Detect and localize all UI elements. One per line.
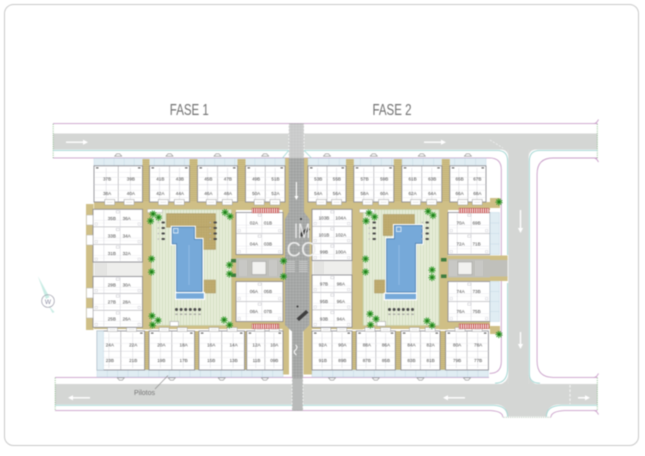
svg-text:13B: 13B [229, 358, 237, 363]
svg-text:63B: 63B [428, 176, 436, 181]
svg-text:02A: 02A [250, 221, 259, 226]
svg-text:··: ·· [264, 344, 266, 348]
svg-text:··: ·· [171, 344, 173, 348]
svg-text:91B: 91B [319, 358, 327, 363]
svg-text:34A: 34A [123, 233, 132, 238]
svg-text:··: ·· [326, 192, 328, 196]
svg-text:64A: 64A [428, 191, 437, 196]
svg-text:19B: 19B [157, 358, 165, 363]
svg-text:38A: 38A [103, 191, 112, 196]
svg-text:99B: 99B [320, 250, 328, 255]
svg-text:98A: 98A [337, 281, 346, 286]
svg-text:··: ·· [373, 177, 375, 181]
svg-text:79B: 79B [453, 358, 461, 363]
svg-text:89B: 89B [338, 358, 346, 363]
svg-text:05B: 05B [264, 289, 272, 294]
svg-text:60A: 60A [380, 191, 389, 196]
svg-text:12A: 12A [252, 343, 261, 348]
svg-text:85B: 85B [382, 358, 390, 363]
svg-text:76A: 76A [457, 309, 466, 314]
svg-text:95B: 95B [320, 299, 328, 304]
svg-text:74A: 74A [457, 289, 466, 294]
svg-text:52A: 52A [271, 191, 280, 196]
svg-text:··: ·· [169, 192, 171, 196]
svg-text:84A: 84A [407, 343, 416, 348]
svg-text:··: ·· [420, 344, 422, 348]
svg-text:15B: 15B [207, 358, 215, 363]
svg-text:92A: 92A [319, 343, 328, 348]
svg-text:FASE 1: FASE 1 [170, 102, 209, 119]
svg-text:72A: 72A [457, 242, 466, 247]
svg-text:··: ·· [118, 177, 120, 181]
svg-text:39B: 39B [127, 176, 135, 181]
svg-text:101B: 101B [319, 233, 330, 238]
svg-text:25B: 25B [108, 317, 116, 322]
svg-text:··: ·· [171, 359, 173, 363]
svg-text:71B: 71B [472, 242, 480, 247]
svg-text:47B: 47B [224, 176, 232, 181]
svg-text:29B: 29B [108, 283, 116, 288]
svg-text:··: ·· [331, 344, 333, 348]
svg-text:··: ·· [120, 344, 122, 348]
svg-text:104A: 104A [335, 216, 347, 221]
svg-text:94A: 94A [337, 316, 346, 321]
svg-text:46A: 46A [204, 191, 213, 196]
svg-text:··: ·· [265, 177, 267, 181]
svg-text:Pilotos: Pilotos [134, 390, 156, 397]
svg-text:54A: 54A [314, 191, 323, 196]
svg-text:40A: 40A [127, 191, 136, 196]
svg-text:18A: 18A [180, 343, 189, 348]
svg-text:09B: 09B [270, 358, 278, 363]
svg-text:11B: 11B [253, 358, 261, 363]
svg-text:65B: 65B [455, 176, 463, 181]
svg-text:49B: 49B [252, 176, 260, 181]
svg-text:··: ·· [375, 344, 377, 348]
svg-text:07B: 07B [264, 309, 272, 314]
svg-text:··: ·· [118, 192, 120, 196]
svg-text:CO: CO [287, 238, 317, 261]
svg-text:04A: 04A [250, 242, 259, 247]
svg-text:··: ·· [221, 344, 223, 348]
svg-text:102A: 102A [335, 233, 347, 238]
svg-text:14A: 14A [229, 343, 238, 348]
svg-text:01B: 01B [264, 221, 272, 226]
svg-text:W: W [45, 299, 52, 306]
svg-text:31B: 31B [108, 251, 116, 256]
svg-text:··: ·· [326, 177, 328, 181]
svg-text:··: ·· [120, 359, 122, 363]
svg-text:··: ·· [420, 359, 422, 363]
svg-text:··: ·· [264, 359, 266, 363]
svg-text:83B: 83B [407, 358, 415, 363]
svg-text:28A: 28A [123, 300, 132, 305]
svg-text:26A: 26A [123, 317, 132, 322]
svg-text:17B: 17B [180, 358, 188, 363]
svg-text:33B: 33B [108, 233, 116, 238]
svg-text:03B: 03B [264, 242, 272, 247]
svg-text:··: ·· [265, 192, 267, 196]
svg-text:··: ·· [467, 192, 469, 196]
svg-text:51B: 51B [271, 176, 279, 181]
svg-text:88A: 88A [363, 343, 372, 348]
svg-text:50A: 50A [252, 191, 261, 196]
svg-text:41B: 41B [156, 176, 164, 181]
svg-text:45B: 45B [204, 176, 212, 181]
svg-text:··: ·· [466, 359, 468, 363]
svg-text:32A: 32A [123, 251, 132, 256]
svg-text:86A: 86A [382, 343, 391, 348]
svg-text:08A: 08A [250, 309, 259, 314]
svg-text:78A: 78A [474, 343, 483, 348]
svg-text:59B: 59B [380, 176, 388, 181]
svg-text:20A: 20A [157, 343, 166, 348]
svg-text:··: ·· [169, 177, 171, 181]
svg-text:16A: 16A [207, 343, 216, 348]
svg-text:43B: 43B [176, 176, 184, 181]
svg-text:53B: 53B [314, 176, 322, 181]
svg-text:44A: 44A [176, 191, 185, 196]
svg-text:66A: 66A [455, 191, 464, 196]
svg-text:··: ·· [331, 359, 333, 363]
svg-text:68A: 68A [473, 191, 482, 196]
svg-text:··: ·· [217, 192, 219, 196]
svg-text:··: ·· [373, 192, 375, 196]
svg-text:22A: 22A [129, 343, 138, 348]
svg-text:58A: 58A [361, 191, 370, 196]
svg-text:FASE 2: FASE 2 [373, 102, 412, 119]
svg-text:69B: 69B [472, 221, 480, 226]
svg-text:61B: 61B [409, 176, 417, 181]
svg-text:70A: 70A [457, 221, 466, 226]
svg-text:96A: 96A [337, 299, 346, 304]
svg-text:82A: 82A [427, 343, 436, 348]
svg-text:35B: 35B [108, 216, 116, 221]
svg-text:··: ·· [421, 192, 423, 196]
svg-text:27B: 27B [108, 300, 116, 305]
svg-text:24A: 24A [106, 343, 115, 348]
svg-text:75B: 75B [472, 309, 480, 314]
svg-text:48A: 48A [224, 191, 233, 196]
svg-text:100A: 100A [335, 250, 347, 255]
svg-text:80A: 80A [453, 343, 462, 348]
svg-text:42A: 42A [156, 191, 165, 196]
svg-text:62A: 62A [409, 191, 418, 196]
svg-text:36A: 36A [123, 216, 132, 221]
svg-text:10A: 10A [270, 343, 279, 348]
svg-text:97B: 97B [320, 281, 328, 286]
svg-text:06A: 06A [250, 289, 259, 294]
svg-text:73B: 73B [472, 289, 480, 294]
svg-text:··: ·· [466, 344, 468, 348]
svg-text:23B: 23B [106, 358, 114, 363]
svg-text:··: ·· [375, 359, 377, 363]
svg-text:93B: 93B [320, 316, 328, 321]
svg-text:55B: 55B [333, 176, 341, 181]
svg-text:90A: 90A [338, 343, 347, 348]
svg-text:30A: 30A [123, 283, 132, 288]
svg-text:103B: 103B [319, 216, 330, 221]
svg-text:57B: 57B [361, 176, 369, 181]
svg-text:··: ·· [467, 177, 469, 181]
svg-text:21B: 21B [129, 358, 137, 363]
svg-text:77B: 77B [474, 358, 482, 363]
svg-text:37B: 37B [103, 176, 111, 181]
svg-text:67B: 67B [473, 176, 481, 181]
svg-text:56A: 56A [333, 191, 342, 196]
svg-text:87B: 87B [363, 358, 371, 363]
svg-text:··: ·· [217, 177, 219, 181]
svg-text:··: ·· [221, 359, 223, 363]
svg-text:··: ·· [421, 177, 423, 181]
svg-text:81B: 81B [427, 358, 435, 363]
